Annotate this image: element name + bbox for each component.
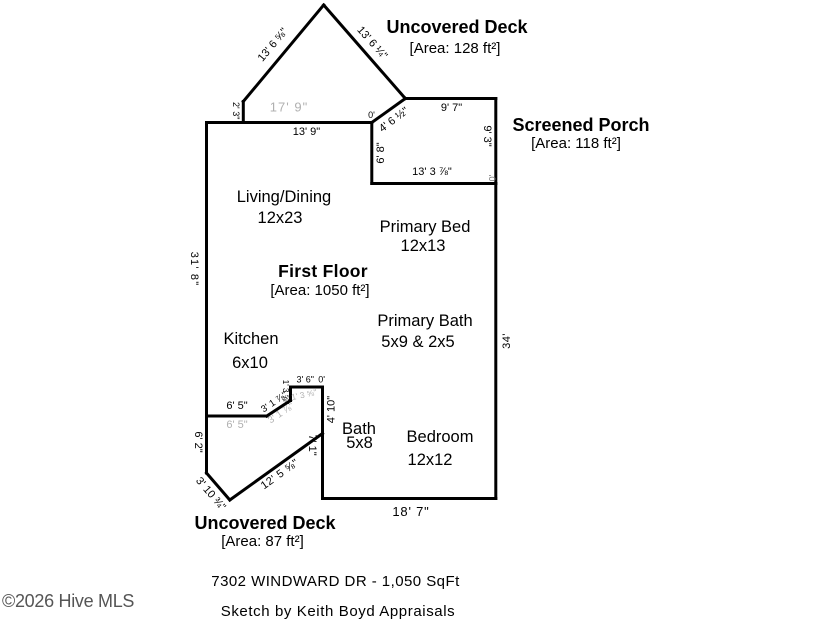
svg-text:12x12: 12x12 [408, 451, 453, 469]
svg-text:0': 0' [368, 110, 375, 120]
svg-text:Bedroom: Bedroom [407, 428, 474, 446]
svg-text:1' 3 ⅝": 1' 3 ⅝" [281, 380, 290, 405]
svg-text:Sketch by Keith Boyd Appraisal: Sketch by Keith Boyd Appraisals [221, 603, 456, 620]
svg-text:13' 3 ⅞": 13' 3 ⅞" [412, 166, 452, 178]
svg-text:13' 9": 13' 9" [293, 126, 321, 138]
svg-text:Screened Porch: Screened Porch [512, 115, 649, 135]
svg-text:34': 34' [501, 333, 513, 349]
svg-text:Primary Bed: Primary Bed [380, 218, 471, 236]
svg-text:6x10: 6x10 [232, 354, 268, 372]
svg-text:©2026 Hive MLS: ©2026 Hive MLS [2, 591, 134, 611]
svg-text:5x9 & 2x5: 5x9 & 2x5 [381, 333, 454, 351]
svg-text:0': 0' [318, 375, 325, 385]
svg-text:4' 10": 4' 10" [326, 396, 338, 424]
svg-text:6' 5": 6' 5" [226, 419, 247, 431]
svg-text:31' 8": 31' 8" [188, 252, 200, 287]
svg-text:Uncovered Deck: Uncovered Deck [386, 17, 528, 37]
svg-text:18' 7": 18' 7" [392, 504, 429, 519]
svg-text:12x23: 12x23 [258, 209, 303, 227]
svg-text:7302 WINDWARD DR - 1,050 SqFt: 7302 WINDWARD DR - 1,050 SqFt [211, 573, 460, 590]
svg-text:[Area: 128 ft²]: [Area: 128 ft²] [410, 40, 501, 57]
svg-text:6' 8": 6' 8" [375, 142, 387, 163]
svg-text:0': 0' [488, 174, 498, 181]
svg-text:2' 3": 2' 3" [231, 102, 241, 119]
svg-text:7' 1": 7' 1" [306, 434, 318, 455]
svg-text:9' 3": 9' 3" [481, 125, 493, 146]
svg-text:5x8: 5x8 [346, 434, 373, 452]
svg-text:[Area: 87 ft²]: [Area: 87 ft²] [221, 533, 304, 550]
svg-text:Uncovered Deck: Uncovered Deck [194, 513, 336, 533]
svg-text:3' 6": 3' 6" [296, 375, 313, 385]
svg-text:17' 9": 17' 9" [270, 100, 308, 115]
svg-text:First Floor: First Floor [278, 261, 368, 281]
svg-text:12x13: 12x13 [401, 237, 446, 255]
svg-text:6' 5": 6' 5" [226, 400, 247, 412]
svg-text:Primary Bath: Primary Bath [377, 312, 472, 330]
svg-text:9' 7": 9' 7" [441, 102, 462, 114]
svg-text:[Area: 1050 ft²]: [Area: 1050 ft²] [270, 282, 369, 299]
svg-text:[Area: 118 ft²]: [Area: 118 ft²] [531, 135, 621, 152]
svg-text:Living/Dining: Living/Dining [237, 188, 331, 206]
svg-text:Kitchen: Kitchen [223, 330, 278, 348]
svg-text:6' 2": 6' 2" [192, 431, 204, 452]
